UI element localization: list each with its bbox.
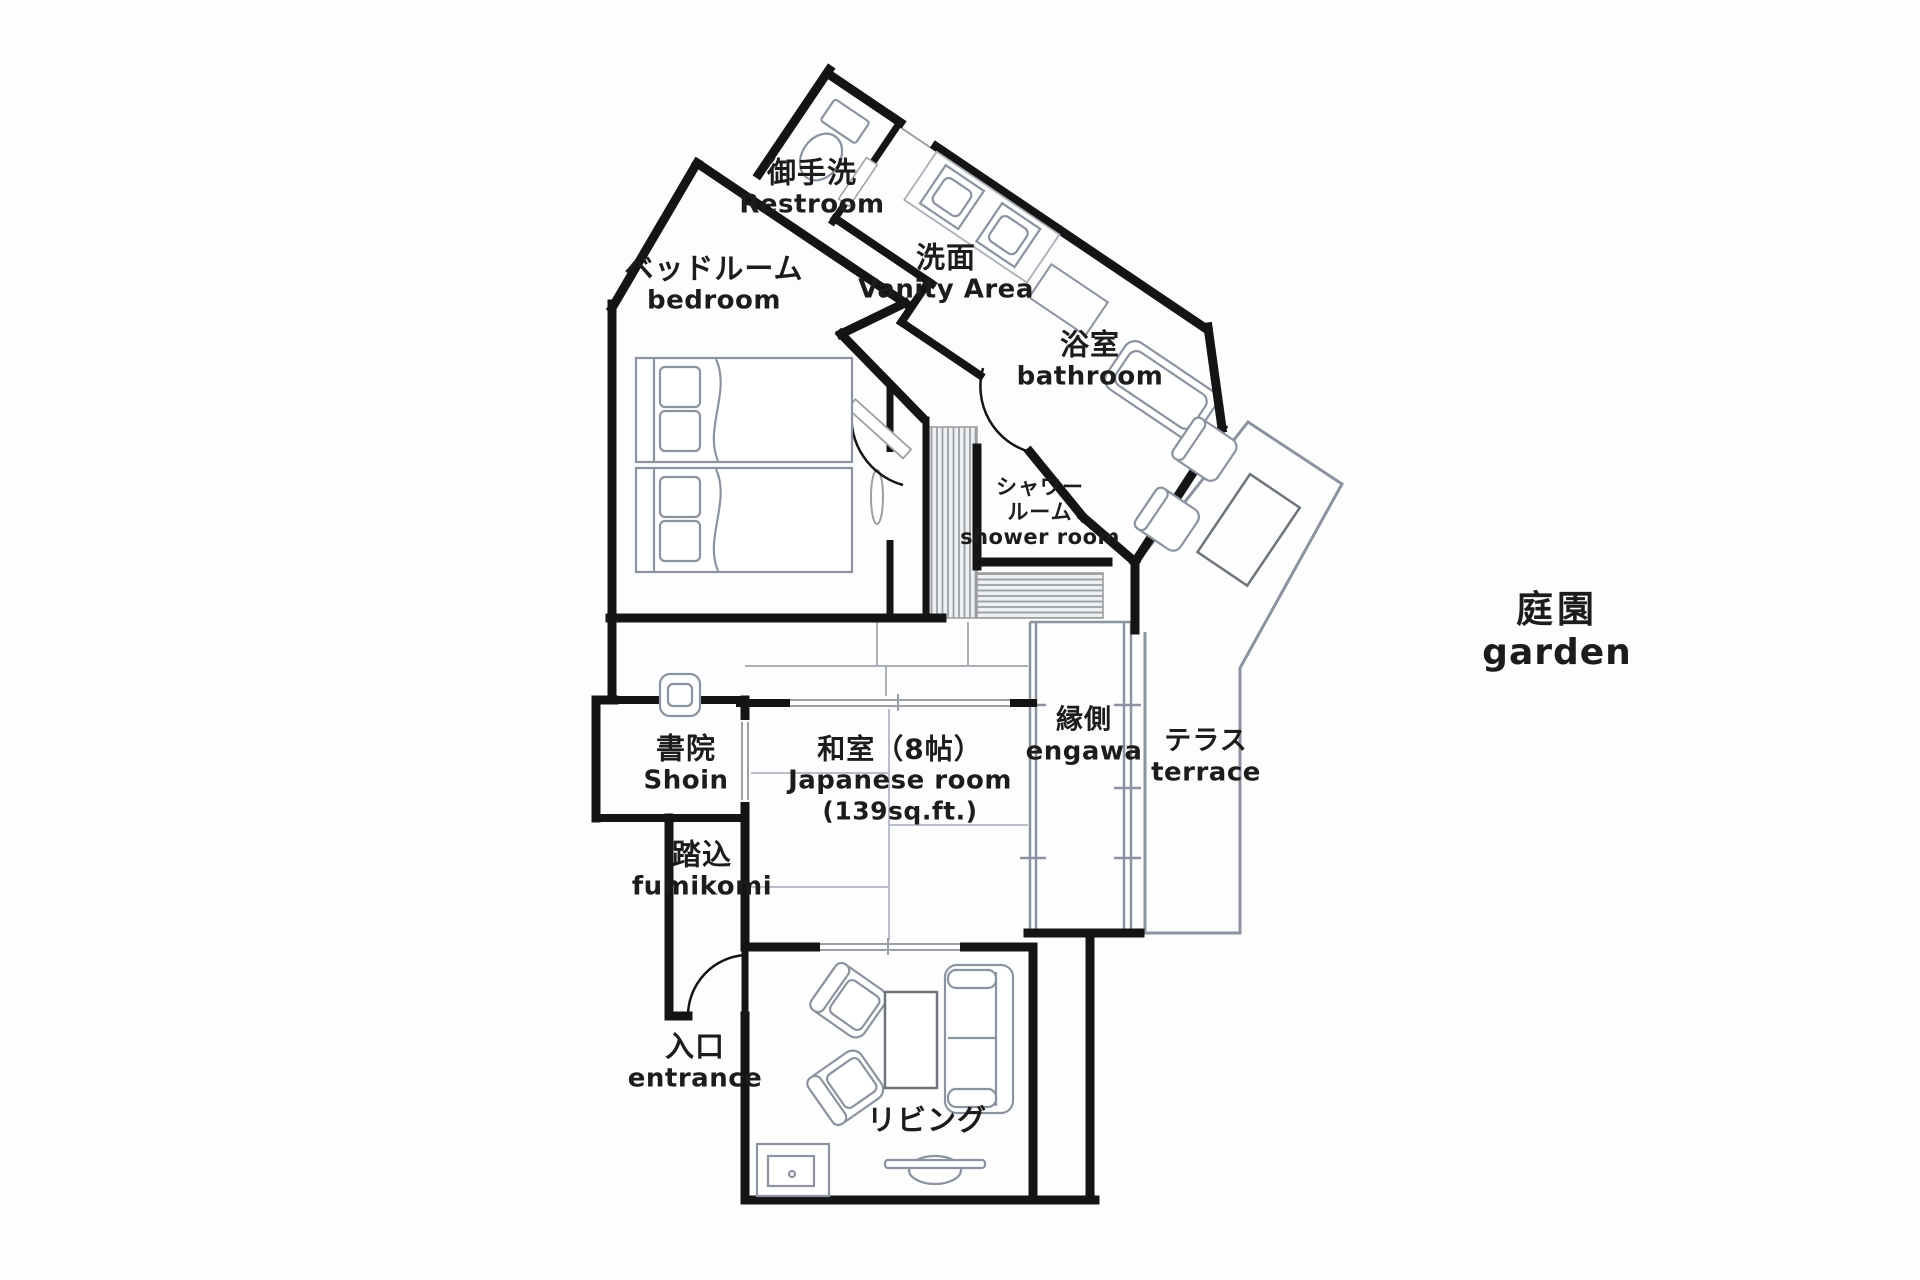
room-name-en: Japanese room xyxy=(788,765,1012,796)
room-name-jp: 入口 xyxy=(628,1030,763,1064)
label-garden: 庭園 garden xyxy=(1482,588,1632,674)
room-name-jp: ベッドルーム xyxy=(624,252,803,286)
room-name-jp: 洗面 xyxy=(858,241,1034,275)
sofa-icon xyxy=(945,965,1013,1113)
room-name-en: bathroom xyxy=(1017,362,1164,393)
room-name-en: Shoin xyxy=(643,766,728,797)
door-handle-icon xyxy=(871,470,883,524)
room-name-en: Restroom xyxy=(739,190,884,221)
sliding-door-icon xyxy=(1020,622,1141,933)
coffee-table-icon xyxy=(885,992,937,1088)
room-name-en: engawa xyxy=(1026,737,1143,768)
label-bathroom: 浴室 bathroom xyxy=(1017,328,1164,393)
room-area: (139sq.ft.) xyxy=(788,796,1012,826)
outdoor-table-icon xyxy=(1197,474,1299,585)
room-name-jp: 踏込 xyxy=(632,838,772,872)
label-engawa: 縁側 engawa xyxy=(1026,705,1143,768)
room-name-jp: 縁側 xyxy=(1026,705,1143,737)
armchair-icon xyxy=(808,960,891,1041)
label-japanese-room: 和室（8帖） Japanese room (139sq.ft.) xyxy=(788,732,1012,825)
vanity-door-leaf xyxy=(847,399,911,458)
label-fumikomi: 踏込 fumikomi xyxy=(632,838,772,903)
tokonoma-lines xyxy=(745,622,1028,700)
label-entrance: 入口 entrance xyxy=(628,1030,763,1095)
room-name-en: shower room xyxy=(960,524,1120,549)
room-name-jp: リビング xyxy=(867,1103,987,1137)
bed-icon xyxy=(636,468,852,572)
label-shoin: 書院 Shoin xyxy=(643,732,728,797)
room-name-en: entrance xyxy=(628,1064,763,1095)
label-bedroom: ベッドルーム bedroom xyxy=(624,252,803,317)
label-shower-room: シャワー ルーム shower room xyxy=(960,475,1120,549)
label-terrace: テラス terrace xyxy=(1151,726,1261,789)
room-name-jp: シャワー xyxy=(960,475,1120,500)
label-vanity-area: 洗面 Vanity Area xyxy=(858,241,1034,306)
label-restroom: 御手洗 Restroom xyxy=(739,156,884,221)
floor-plan-canvas xyxy=(0,0,1920,1280)
room-name-en: Vanity Area xyxy=(858,275,1034,306)
room-name-jp: テラス xyxy=(1151,726,1261,758)
room-name-jp: 庭園 xyxy=(1482,588,1632,632)
armchair-icon xyxy=(660,674,700,716)
bath-bench xyxy=(1029,264,1108,335)
room-name-jp: 書院 xyxy=(643,732,728,766)
room-name-jp: ルーム xyxy=(960,500,1120,525)
floor-plan: 御手洗 Restroom ベッドルーム bedroom 洗面 Vanity Ar… xyxy=(0,0,1920,1280)
room-name-en: bedroom xyxy=(624,286,803,317)
tv-icon xyxy=(885,1156,985,1184)
room-name-en: garden xyxy=(1482,632,1632,674)
tv-cabinet-icon xyxy=(757,1144,829,1196)
room-name-jp: 浴室 xyxy=(1017,328,1164,362)
bed-icon xyxy=(636,358,852,462)
room-name-jp: 和室（8帖） xyxy=(788,732,1012,765)
terrace-furniture xyxy=(1126,415,1311,597)
room-name-en: fumikomi xyxy=(632,872,772,903)
label-living: リビング xyxy=(867,1103,987,1137)
door-swing-icon xyxy=(688,955,745,1016)
room-name-en: terrace xyxy=(1151,758,1261,789)
room-name-jp: 御手洗 xyxy=(739,156,884,190)
